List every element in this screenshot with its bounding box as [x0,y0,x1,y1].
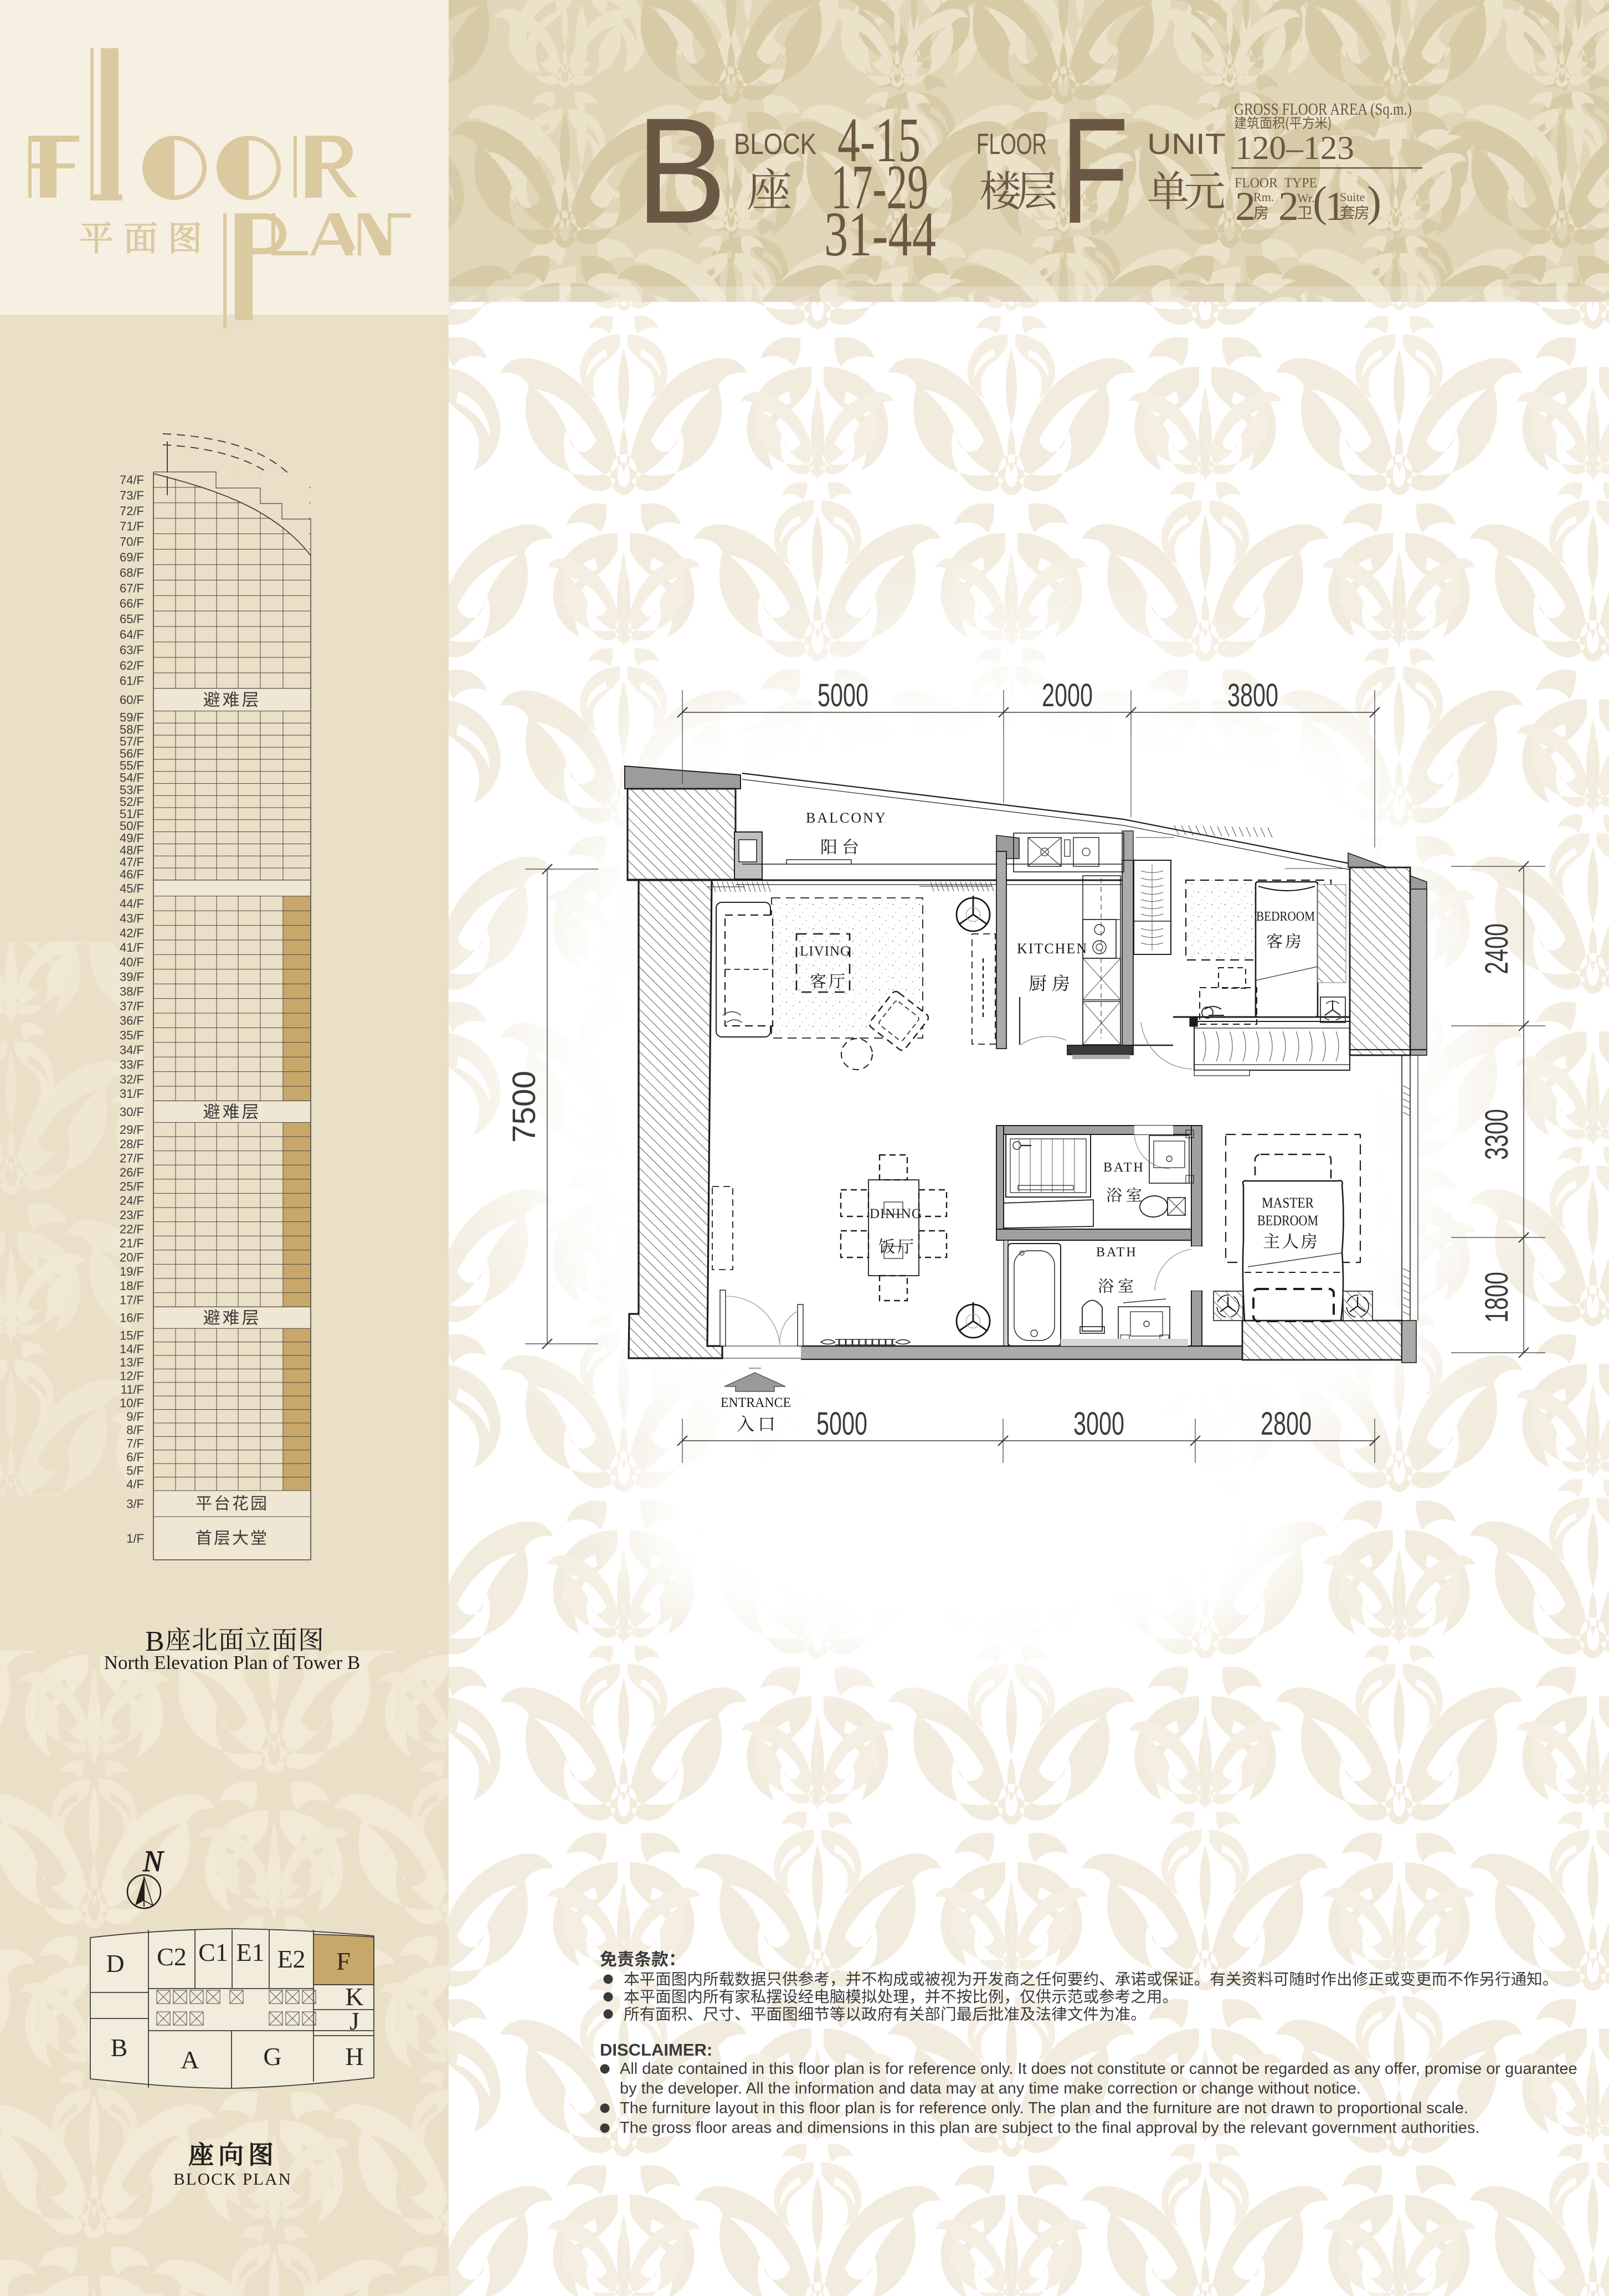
svg-text:F: F [336,1947,351,1975]
svg-text:6/F: 6/F [126,1450,144,1464]
svg-text:Wr.: Wr. [1297,191,1315,205]
svg-text:42/F: 42/F [120,926,144,940]
svg-text:2800: 2800 [1261,1406,1312,1442]
svg-text:1/F: 1/F [126,1532,144,1545]
svg-text:72/F: 72/F [120,504,144,518]
svg-text:BEDROOM: BEDROOM [1257,1213,1318,1229]
svg-text:UNIT: UNIT [1147,128,1226,161]
svg-text:39/F: 39/F [120,970,144,984]
svg-text:5/F: 5/F [126,1463,144,1477]
svg-text:27/F: 27/F [120,1151,144,1165]
svg-text:3800: 3800 [1227,677,1278,713]
svg-text:24/F: 24/F [120,1194,144,1208]
svg-text:B: B [636,86,727,255]
svg-text:3000: 3000 [1073,1406,1124,1442]
svg-text:67/F: 67/F [120,581,144,595]
svg-text:DISCLAIMER:: DISCLAIMER: [600,2040,712,2059]
svg-text:26/F: 26/F [120,1165,144,1179]
svg-text:by the developer. All the info: by the developer. All the information an… [620,2080,1361,2098]
svg-text:12/F: 12/F [120,1369,144,1383]
svg-text:7/F: 7/F [126,1437,144,1451]
svg-text:60/F: 60/F [120,693,144,707]
svg-text:D: D [106,1949,124,1977]
svg-text:19/F: 19/F [120,1265,144,1278]
svg-text:BATH: BATH [1103,1160,1145,1175]
svg-text:10/F: 10/F [120,1396,144,1410]
svg-text:Suite: Suite [1340,190,1365,204]
svg-text:16/F: 16/F [120,1311,144,1325]
svg-text:3300: 3300 [1479,1109,1515,1160]
svg-text:BATH: BATH [1096,1245,1138,1260]
svg-text:31-44: 31-44 [824,199,936,269]
svg-text:34/F: 34/F [120,1043,144,1057]
svg-text:BLOCK: BLOCK [734,128,816,161]
svg-text:25/F: 25/F [120,1180,144,1194]
svg-text:31/F: 31/F [120,1087,144,1101]
svg-text:65/F: 65/F [120,612,144,626]
svg-text:B: B [111,2033,128,2062]
svg-text:64/F: 64/F [120,628,144,641]
svg-text:GROSS FLOOR AREA (Sq.m.): GROSS FLOOR AREA (Sq.m.) [1234,99,1412,119]
svg-text:A: A [181,2046,199,2074]
svg-text:21/F: 21/F [120,1236,144,1250]
svg-text:N: N [142,1845,165,1878]
svg-text:): ) [1367,177,1381,225]
svg-text:37/F: 37/F [120,999,144,1013]
svg-text:9/F: 9/F [126,1410,144,1424]
svg-text:H: H [345,2042,363,2071]
svg-text:43/F: 43/F [120,911,144,925]
svg-text:All date contained in this flo: All date contained in this floor plan is… [620,2060,1577,2078]
svg-text:70/F: 70/F [120,535,144,549]
svg-text:G: G [263,2042,281,2071]
svg-text:5000: 5000 [818,677,868,713]
svg-text:38/F: 38/F [120,984,144,998]
svg-text:74/F: 74/F [120,473,144,487]
svg-text:68/F: 68/F [120,566,144,579]
svg-text:5000: 5000 [816,1406,867,1442]
svg-text:23/F: 23/F [120,1208,144,1222]
svg-text:71/F: 71/F [120,520,144,533]
svg-text:15/F: 15/F [120,1328,144,1342]
svg-text:13/F: 13/F [120,1355,144,1369]
svg-text:69/F: 69/F [120,550,144,564]
svg-text:22/F: 22/F [120,1222,144,1236]
svg-text:32/F: 32/F [120,1072,144,1086]
svg-text:28/F: 28/F [120,1137,144,1151]
svg-text:11/F: 11/F [121,1383,144,1396]
svg-text:40/F: 40/F [120,956,144,969]
svg-text:The gross floor areas and dime: The gross floor areas and dimensions in … [620,2119,1479,2137]
svg-text:33/F: 33/F [120,1057,144,1071]
svg-text:E1: E1 [236,1938,264,1966]
svg-text:Rm.: Rm. [1253,190,1274,204]
svg-text:30/F: 30/F [120,1105,144,1119]
svg-text:7500: 7500 [506,1071,542,1143]
svg-text:The furniture layout in this f: The furniture layout in this floor plan … [620,2099,1468,2117]
svg-text:ENTRANCE: ENTRANCE [721,1395,791,1410]
svg-text:FLOOR: FLOOR [976,128,1047,161]
svg-text:120–123: 120–123 [1235,130,1354,166]
svg-text:J: J [349,2007,359,2035]
svg-text:KITCHEN: KITCHEN [1017,941,1088,957]
svg-text:73/F: 73/F [120,489,144,502]
svg-text:35/F: 35/F [120,1029,144,1042]
svg-text:BALCONY: BALCONY [806,810,887,826]
svg-text:DINING: DINING [870,1206,922,1221]
svg-text:62/F: 62/F [120,659,144,672]
svg-text:66/F: 66/F [120,597,144,610]
svg-text:F: F [1061,86,1129,255]
svg-text:1800: 1800 [1479,1272,1515,1323]
svg-text:14/F: 14/F [120,1342,144,1356]
svg-text:C1: C1 [198,1938,228,1966]
svg-text:LIVING: LIVING [800,944,851,959]
svg-text:20/F: 20/F [120,1251,144,1265]
svg-text:MASTER: MASTER [1262,1195,1314,1211]
svg-text:North Elevation Plan of Tower: North Elevation Plan of Tower B [104,1652,361,1673]
svg-text:61/F: 61/F [120,674,144,688]
svg-text:29/F: 29/F [120,1123,144,1137]
svg-text:36/F: 36/F [120,1014,144,1028]
svg-text:BEDROOM: BEDROOM [1256,910,1315,924]
svg-text:8/F: 8/F [126,1423,144,1437]
svg-text:44/F: 44/F [120,897,144,911]
svg-text:C2: C2 [157,1943,187,1971]
svg-text:18/F: 18/F [120,1279,144,1293]
svg-text:45/F: 45/F [120,881,144,895]
svg-text:3/F: 3/F [126,1497,144,1511]
svg-text:2000: 2000 [1042,677,1093,713]
svg-text:41/F: 41/F [120,941,144,954]
svg-text:BLOCK PLAN: BLOCK PLAN [173,2169,292,2189]
svg-text:17/F: 17/F [120,1293,144,1307]
svg-text:2400: 2400 [1479,923,1515,974]
svg-text:2: 2 [1235,184,1256,229]
svg-text:46/F: 46/F [120,867,144,881]
svg-text:E2: E2 [277,1945,305,1973]
svg-text:63/F: 63/F [120,643,144,657]
svg-text:4/F: 4/F [126,1477,144,1491]
svg-text:2: 2 [1278,184,1299,229]
